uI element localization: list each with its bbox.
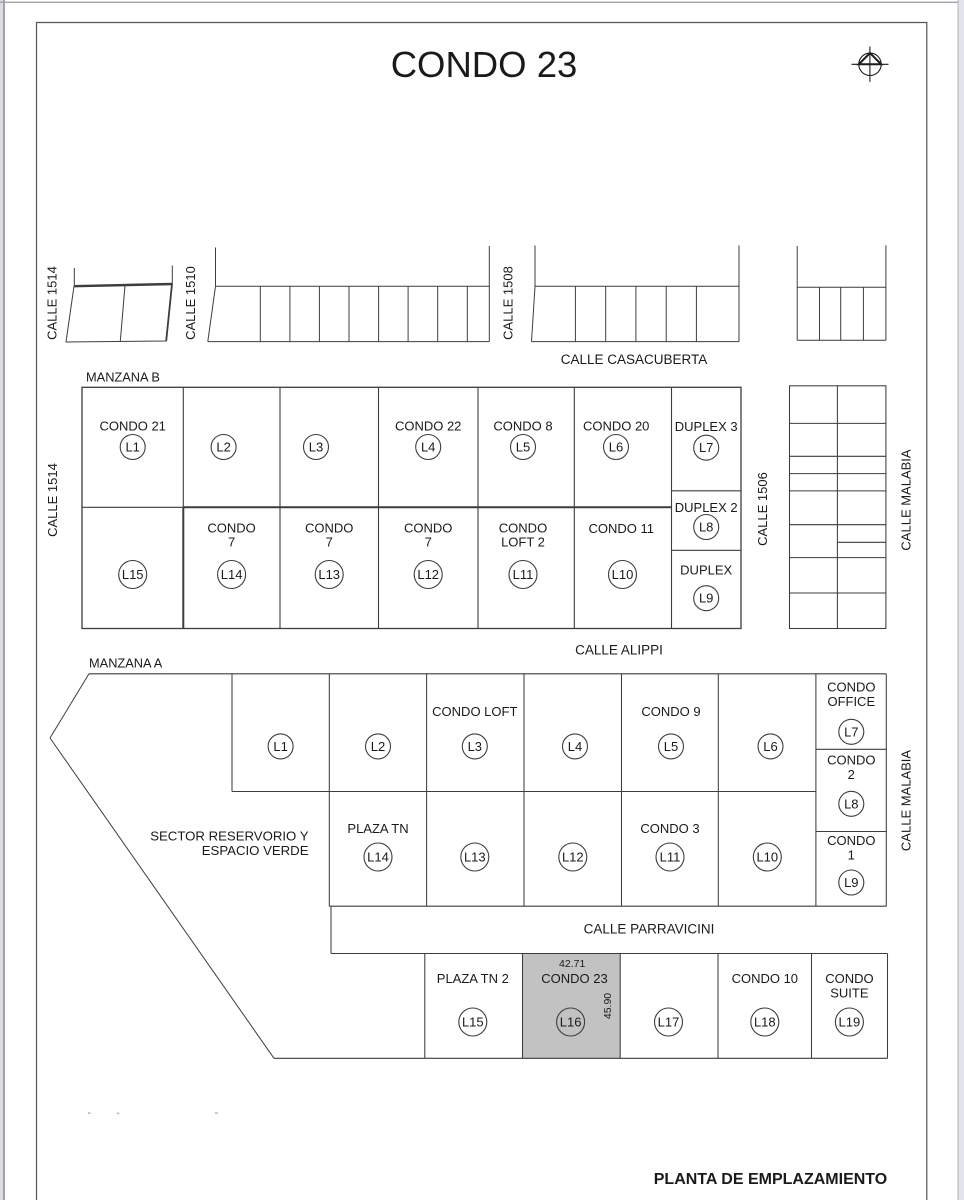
svg-text:CALLE 1510: CALLE 1510: [183, 266, 198, 340]
svg-text:CONDO 20: CONDO 20: [583, 419, 649, 434]
svg-text:CONDO: CONDO: [305, 521, 353, 536]
svg-text:CONDO: CONDO: [825, 971, 873, 986]
svg-text:CONDO 21: CONDO 21: [99, 419, 165, 434]
svg-text:SECTOR RESERVORIO Y: SECTOR RESERVORIO Y: [150, 829, 308, 844]
svg-text:CONDO 8: CONDO 8: [493, 419, 552, 434]
svg-text:L4: L4: [568, 739, 582, 754]
svg-text:CONDO: CONDO: [404, 521, 452, 536]
svg-text:L13: L13: [318, 567, 340, 582]
svg-text:CONDO: CONDO: [207, 521, 255, 536]
svg-text:L5: L5: [664, 739, 678, 754]
svg-text:CONDO 10: CONDO 10: [732, 971, 798, 986]
svg-text:L11: L11: [660, 850, 681, 865]
svg-text:L14: L14: [221, 567, 243, 582]
svg-text:L15: L15: [122, 567, 144, 582]
svg-text:CALLE 1508: CALLE 1508: [501, 266, 516, 340]
svg-text:CALLE ALIPPI: CALLE ALIPPI: [575, 643, 663, 658]
svg-text:CALLE CASACUBERTA: CALLE CASACUBERTA: [561, 352, 708, 367]
svg-text:L9: L9: [699, 591, 713, 606]
svg-text:L10: L10: [612, 567, 634, 582]
svg-text:L6: L6: [609, 440, 623, 455]
svg-text:7: 7: [425, 535, 432, 550]
svg-text:CALLE MALABIA: CALLE MALABIA: [899, 750, 914, 851]
svg-text:L9: L9: [844, 875, 858, 890]
svg-text:L12: L12: [417, 567, 439, 582]
svg-text:L14: L14: [367, 850, 389, 865]
svg-text:L10: L10: [756, 850, 778, 865]
svg-text:CONDO 3: CONDO 3: [640, 821, 699, 836]
svg-text:DUPLEX 2: DUPLEX 2: [675, 500, 738, 515]
svg-text:MANZANA A: MANZANA A: [89, 656, 163, 671]
svg-text:1: 1: [848, 848, 855, 863]
svg-text:L13: L13: [464, 850, 486, 865]
svg-text:L5: L5: [516, 440, 530, 455]
svg-text:L2: L2: [371, 739, 385, 754]
svg-text:7: 7: [228, 535, 235, 550]
svg-text:L3: L3: [468, 739, 482, 754]
svg-text:L12: L12: [562, 850, 584, 865]
svg-text:PLANTA DE EMPLAZAMIENTO: PLANTA DE EMPLAZAMIENTO: [654, 1171, 887, 1188]
svg-text:SUITE: SUITE: [830, 985, 869, 1000]
svg-text:CONDO: CONDO: [827, 680, 875, 695]
svg-text:CALLE PARRAVICINI: CALLE PARRAVICINI: [584, 922, 715, 937]
svg-text:PLAZA TN: PLAZA TN: [347, 821, 408, 836]
svg-text:MANZANA B: MANZANA B: [86, 370, 160, 385]
svg-text:L1: L1: [125, 440, 139, 455]
svg-text:42.71: 42.71: [559, 958, 585, 970]
svg-text:DUPLEX 3: DUPLEX 3: [675, 419, 738, 434]
svg-text:L17: L17: [658, 1015, 680, 1030]
svg-text:L19: L19: [839, 1015, 861, 1030]
svg-text:7: 7: [326, 535, 333, 550]
svg-text:CALLE 1514: CALLE 1514: [45, 266, 60, 340]
svg-text:CONDO 9: CONDO 9: [641, 704, 700, 719]
svg-text:CONDO: CONDO: [499, 521, 547, 536]
svg-text:PLAZA TN 2: PLAZA TN 2: [437, 971, 509, 986]
svg-text:L8: L8: [699, 520, 713, 535]
svg-text:L3: L3: [309, 440, 323, 455]
svg-text:CONDO: CONDO: [827, 833, 875, 848]
svg-text:ESPACIO VERDE: ESPACIO VERDE: [202, 843, 309, 858]
svg-text:L8: L8: [844, 796, 858, 811]
svg-text:CALLE 1514: CALLE 1514: [45, 463, 60, 537]
svg-text:L1: L1: [273, 739, 287, 754]
svg-text:45.90: 45.90: [602, 993, 614, 1019]
svg-text:L4: L4: [421, 440, 435, 455]
svg-text:CONDO 22: CONDO 22: [395, 419, 461, 434]
svg-text:CONDO LOFT: CONDO LOFT: [432, 704, 517, 719]
svg-text:L2: L2: [216, 440, 230, 455]
svg-text:L7: L7: [699, 440, 713, 455]
svg-text:OFFICE: OFFICE: [827, 694, 875, 709]
svg-text:CONDO: CONDO: [827, 753, 875, 768]
svg-text:DUPLEX: DUPLEX: [680, 563, 732, 578]
svg-text:L11: L11: [513, 567, 534, 582]
svg-text:L7: L7: [844, 724, 858, 739]
svg-text:L15: L15: [462, 1015, 484, 1030]
svg-text:CALLE 1506: CALLE 1506: [755, 472, 770, 546]
svg-text:CALLE MALABIA: CALLE MALABIA: [899, 449, 914, 550]
svg-text:LOFT 2: LOFT 2: [501, 535, 545, 550]
svg-text:L18: L18: [754, 1015, 776, 1030]
svg-text:CONDO 11: CONDO 11: [588, 521, 654, 536]
svg-text:L16: L16: [560, 1015, 582, 1030]
svg-text:2: 2: [848, 767, 855, 782]
svg-text:L6: L6: [763, 739, 777, 754]
svg-text:CONDO 23: CONDO 23: [391, 44, 578, 85]
svg-text:CONDO 23: CONDO 23: [541, 971, 607, 986]
